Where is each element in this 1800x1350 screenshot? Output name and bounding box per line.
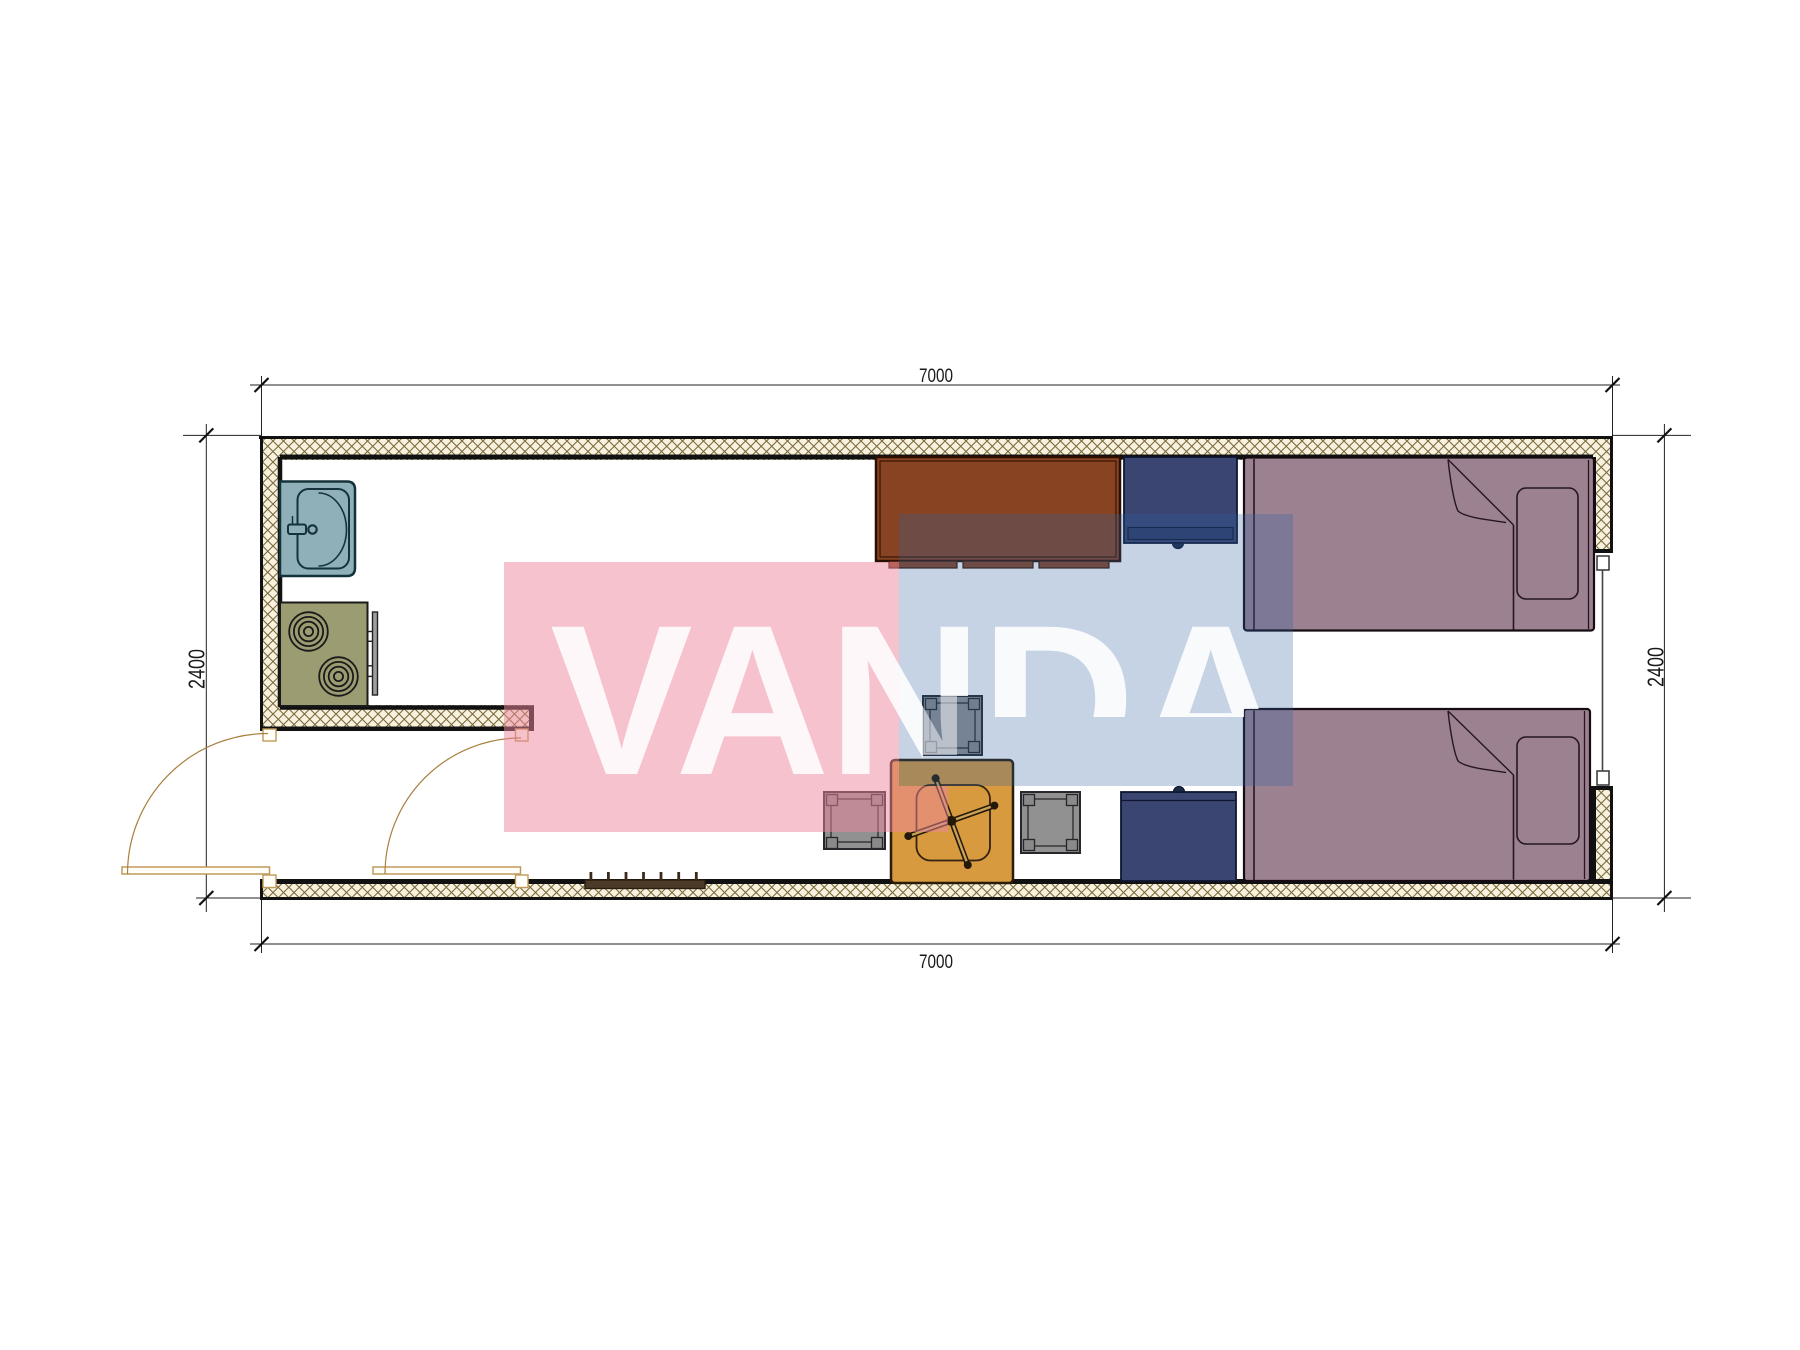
svg-text:7000: 7000 — [919, 952, 953, 973]
svg-text:7000: 7000 — [919, 366, 953, 387]
svg-text:2400: 2400 — [184, 649, 210, 689]
svg-text:2400: 2400 — [1643, 647, 1669, 687]
